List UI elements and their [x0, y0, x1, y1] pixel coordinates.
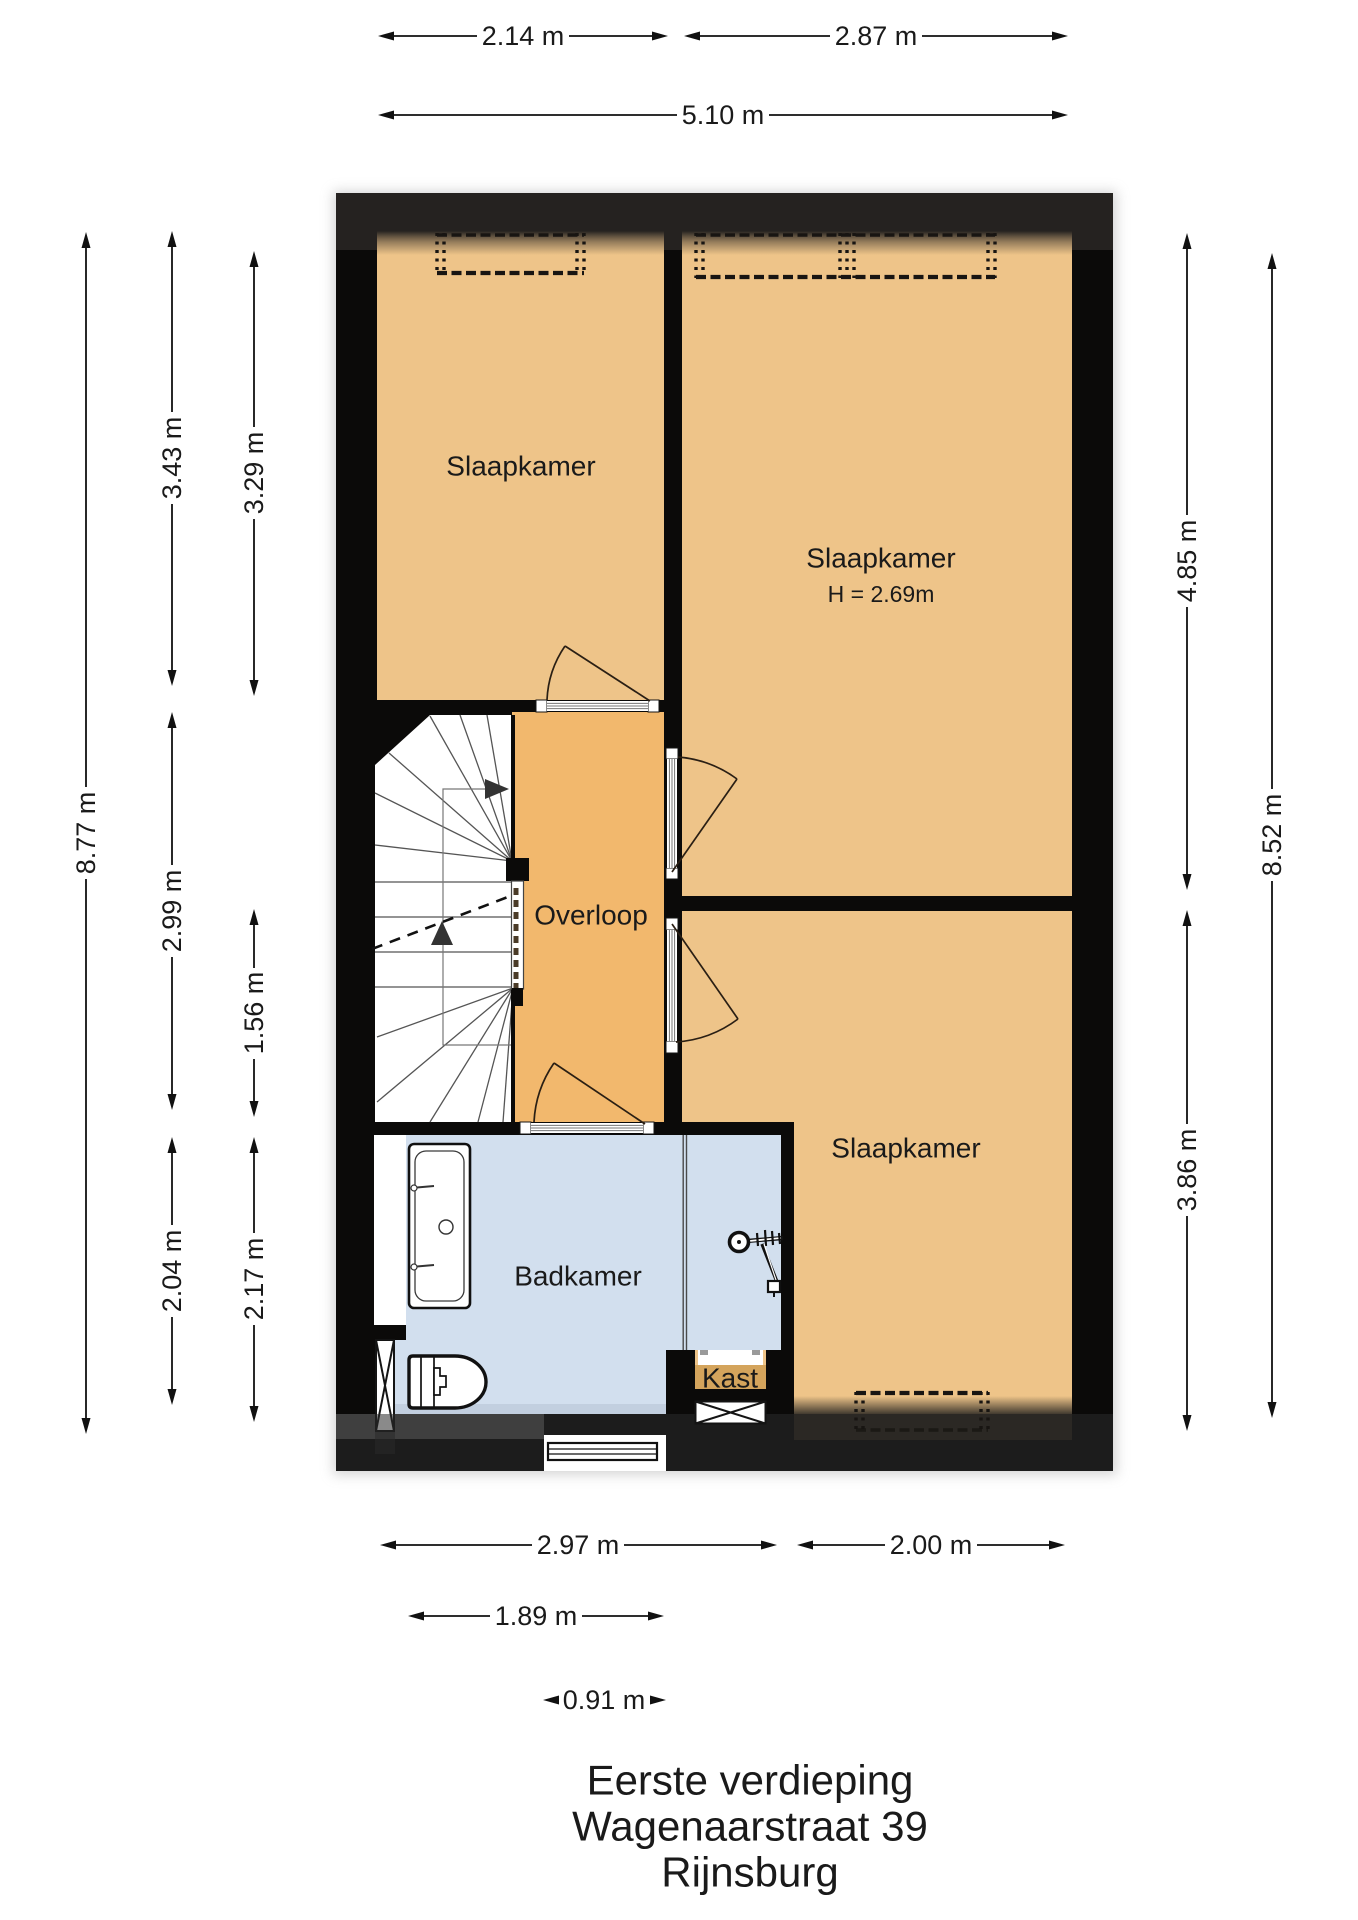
svg-text:Eerste verdieping: Eerste verdieping	[587, 1757, 914, 1804]
svg-text:H = 2.69m: H = 2.69m	[828, 581, 935, 607]
svg-text:5.10 m: 5.10 m	[682, 100, 765, 130]
svg-text:Slaapkamer: Slaapkamer	[831, 1133, 980, 1164]
svg-text:2.04 m: 2.04 m	[157, 1230, 187, 1313]
svg-text:0.91 m: 0.91 m	[563, 1685, 646, 1715]
svg-text:3.29 m: 3.29 m	[239, 432, 269, 515]
svg-text:Kast: Kast	[702, 1363, 758, 1394]
svg-text:Rijnsburg: Rijnsburg	[661, 1849, 838, 1896]
svg-text:Badkamer: Badkamer	[514, 1261, 642, 1292]
svg-text:1.89 m: 1.89 m	[495, 1601, 578, 1631]
svg-text:3.86 m: 3.86 m	[1172, 1129, 1202, 1212]
svg-text:Wagenaarstraat 39: Wagenaarstraat 39	[572, 1803, 928, 1850]
svg-text:2.00 m: 2.00 m	[890, 1530, 973, 1560]
svg-text:Slaapkamer: Slaapkamer	[806, 543, 955, 574]
svg-text:8.52 m: 8.52 m	[1257, 794, 1287, 877]
svg-text:4.85 m: 4.85 m	[1172, 520, 1202, 603]
svg-text:1.56 m: 1.56 m	[239, 972, 269, 1055]
svg-text:8.77 m: 8.77 m	[71, 792, 101, 875]
svg-text:2.17 m: 2.17 m	[239, 1238, 269, 1321]
svg-text:2.99 m: 2.99 m	[157, 870, 187, 953]
svg-text:2.87 m: 2.87 m	[835, 21, 918, 51]
svg-text:Overloop: Overloop	[534, 900, 648, 931]
svg-text:Slaapkamer: Slaapkamer	[446, 451, 595, 482]
svg-text:2.14 m: 2.14 m	[482, 21, 565, 51]
svg-text:3.43 m: 3.43 m	[157, 417, 187, 500]
svg-text:2.97 m: 2.97 m	[537, 1530, 620, 1560]
